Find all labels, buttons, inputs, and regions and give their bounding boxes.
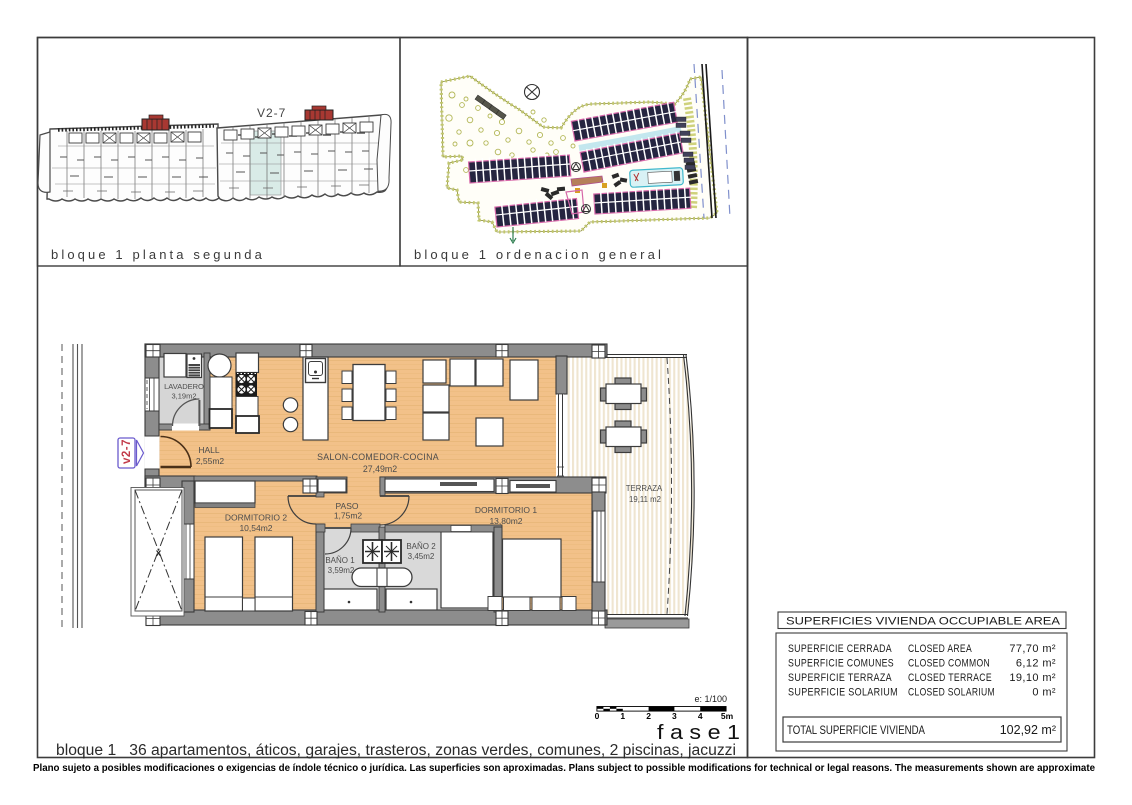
svg-text:CLOSED COMMON: CLOSED COMMON [908, 658, 990, 670]
svg-text:5m: 5m [721, 711, 734, 721]
svg-text:1,75m2: 1,75m2 [334, 511, 363, 521]
svg-text:27,49m2: 27,49m2 [363, 464, 397, 474]
svg-text:SUPERFICIE TERRAZA: SUPERFICIE TERRAZA [788, 672, 892, 684]
svg-text:SUPERFICIES VIVIENDA OCCUPIA: SUPERFICIES VIVIENDA OCCUPIABLE AREA [786, 616, 1061, 628]
svg-text:bloque 1 ordenacion general: bloque 1 ordenacion general [414, 248, 664, 262]
svg-text:BAÑO 2: BAÑO 2 [406, 542, 436, 551]
svg-text:Plano sujeto a posibles modifi: Plano sujeto a posibles modificaciones o… [33, 763, 1095, 774]
svg-text:10,54m2: 10,54m2 [239, 523, 272, 533]
svg-text:0 m²: 0 m² [1032, 687, 1056, 699]
svg-text:SUPERFICIE CERRADA: SUPERFICIE CERRADA [788, 643, 892, 655]
svg-text:77,70 m²: 77,70 m² [1009, 643, 1056, 655]
svg-text:3,19m2: 3,19m2 [171, 392, 196, 401]
svg-text:CLOSED SOLARIUM: CLOSED SOLARIUM [908, 687, 995, 699]
svg-text:LAVADERO: LAVADERO [164, 382, 204, 391]
svg-text:4: 4 [698, 711, 703, 721]
svg-text:V2-7: V2-7 [257, 106, 286, 120]
svg-text:bloque 1 planta segunda: bloque 1 planta segunda [51, 248, 265, 262]
svg-text:f a s e 1: f a s e 1 [657, 722, 740, 744]
svg-text:102,92 m²: 102,92 m² [1000, 723, 1056, 737]
svg-text:PASO: PASO [336, 501, 359, 511]
svg-text:CLOSED AREA: CLOSED AREA [908, 643, 972, 655]
svg-text:HALL: HALL [198, 445, 220, 455]
svg-text:CLOSED TERRACE: CLOSED TERRACE [908, 672, 992, 684]
svg-text:2,55m2: 2,55m2 [196, 456, 225, 466]
svg-text:BAÑO 1: BAÑO 1 [325, 556, 355, 565]
svg-text:0: 0 [595, 711, 600, 721]
svg-text:x: x [156, 548, 162, 559]
svg-text:19,11 m2: 19,11 m2 [629, 495, 661, 504]
svg-text:13,80m2: 13,80m2 [489, 516, 522, 526]
svg-text:DORMITORIO 2: DORMITORIO 2 [225, 513, 287, 523]
svg-text:SALON-COMEDOR-COCINA: SALON-COMEDOR-COCINA [317, 452, 439, 462]
svg-text:3,59m2: 3,59m2 [328, 566, 355, 575]
svg-text:6,12 m²: 6,12 m² [1016, 658, 1056, 670]
svg-text:SUPERFICIE COMUNES: SUPERFICIE COMUNES [788, 658, 894, 670]
svg-text:3: 3 [672, 711, 677, 721]
svg-text:2: 2 [646, 711, 651, 721]
svg-text:bloque 1 36 apartamentos, át: bloque 1 36 apartamentos, áticos, garaje… [56, 742, 736, 759]
svg-text:TERRAZA: TERRAZA [626, 484, 663, 493]
svg-text:v2-7: v2-7 [121, 439, 133, 464]
svg-text:3,45m2: 3,45m2 [408, 552, 435, 561]
svg-text:SUPERFICIE SOLARIUM: SUPERFICIE SOLARIUM [788, 687, 898, 699]
svg-text:TOTAL SUPERFICIE VIVIENDA: TOTAL SUPERFICIE VIVIENDA [787, 723, 925, 737]
svg-text:19,10 m²: 19,10 m² [1009, 672, 1056, 684]
svg-text:1: 1 [620, 711, 625, 721]
svg-text:DORMITORIO 1: DORMITORIO 1 [475, 505, 537, 515]
svg-text:e: 1/100: e: 1/100 [694, 694, 727, 704]
